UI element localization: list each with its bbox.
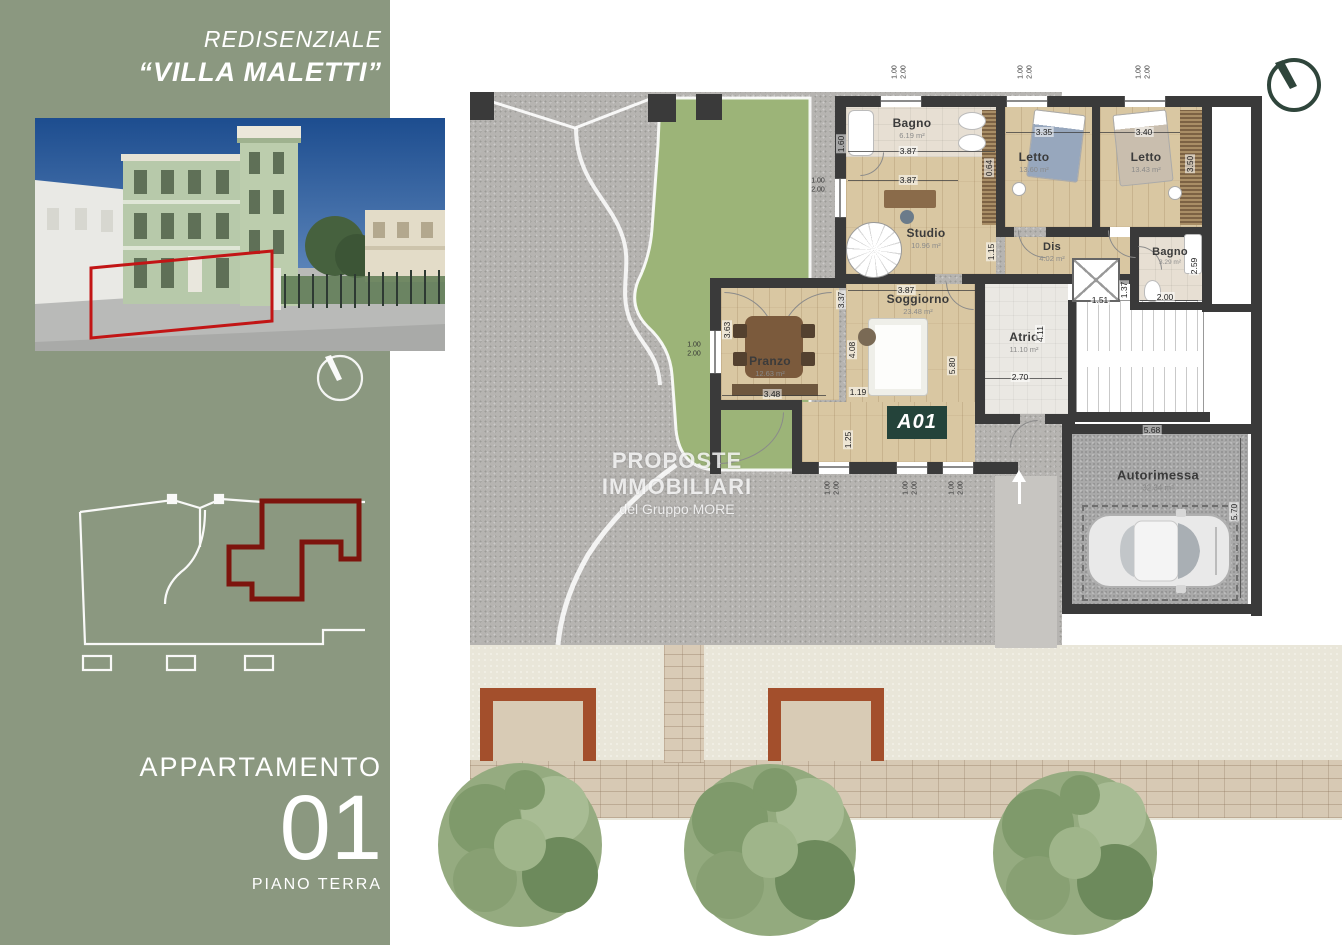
residence-type: REDISENZIALE xyxy=(0,26,382,53)
apartment-badge: A01 xyxy=(887,406,947,439)
dim-label: 3.87 xyxy=(899,146,918,156)
nightstand xyxy=(1168,186,1182,200)
chair xyxy=(733,324,747,338)
dim-label: 4.08 xyxy=(847,341,857,360)
wall xyxy=(710,400,802,410)
window-size-label: 1.002.00 xyxy=(948,481,966,495)
north-compass-icon-small xyxy=(308,348,368,408)
staircase xyxy=(1076,300,1204,414)
side-table xyxy=(858,328,876,346)
street-trees xyxy=(430,750,1200,945)
entrance-arrow xyxy=(1012,470,1026,482)
dim-label: 1.51 xyxy=(1091,295,1110,305)
brochure-page: REDISENZIALE “VILLA MALETTI” xyxy=(0,0,1342,945)
building-photo xyxy=(35,118,445,351)
car-top-view xyxy=(1086,509,1232,593)
desk xyxy=(884,190,936,208)
wall xyxy=(1046,227,1110,237)
window xyxy=(818,462,850,474)
residence-header: REDISENZIALE “VILLA MALETTI” xyxy=(0,26,382,88)
wall xyxy=(1251,96,1262,616)
window-size-label: 1.002.00 xyxy=(902,481,920,495)
dim-label: 1.25 xyxy=(843,431,853,450)
window-size-label: 1.002.00 xyxy=(1017,65,1035,79)
tree xyxy=(684,764,856,936)
dim-label: 3.48 xyxy=(763,389,782,399)
apartment-number: 01 xyxy=(0,785,382,872)
room-label-dis: Dis 4.02 m² xyxy=(1039,241,1064,263)
window-size-label: 1.002.00 xyxy=(891,65,909,79)
sofa xyxy=(868,318,928,396)
wall xyxy=(848,462,896,474)
window xyxy=(1006,96,1048,107)
dim-label: 0.64 xyxy=(984,159,994,178)
dimension-line xyxy=(848,151,995,152)
room-label-studio: Studio 10.96 m² xyxy=(906,226,945,250)
window xyxy=(1124,96,1166,107)
wall xyxy=(1202,96,1212,312)
wall xyxy=(975,282,985,414)
wall xyxy=(1092,107,1100,227)
wall xyxy=(710,278,846,288)
room-label-letto-1: Letto 13.60 m² xyxy=(1019,150,1050,174)
wall xyxy=(792,462,818,474)
north-compass-icon xyxy=(1262,55,1326,119)
floor-label: PIANO TERRA xyxy=(0,876,382,894)
dim-label: 3.37 xyxy=(836,291,846,310)
room-label-autorimessa: Autorimessa 32.34 m² xyxy=(1117,468,1199,493)
tree xyxy=(993,771,1157,935)
key-plan xyxy=(55,462,365,677)
tree xyxy=(438,763,602,927)
room-label-bagno-2: Bagno 3.29 m² xyxy=(1152,246,1188,266)
dimension-line xyxy=(1240,438,1241,598)
nightstand xyxy=(1012,182,1026,196)
dim-label: 3.50 xyxy=(1185,155,1195,174)
dim-label: 3.35 xyxy=(1035,127,1054,137)
dim-label: 1.19 xyxy=(849,387,868,397)
window xyxy=(710,330,721,374)
room-label-bagno-1: Bagno 6.19 m² xyxy=(893,116,932,140)
key-plan-apartment-outline xyxy=(229,501,359,599)
wall xyxy=(1130,302,1208,310)
window-size-label: 1.002.00 xyxy=(1135,65,1153,79)
entrance-arrow-stem xyxy=(1018,482,1021,504)
wall xyxy=(926,462,942,474)
chair xyxy=(801,324,815,338)
dim-label: 3.63 xyxy=(722,321,732,340)
dim-label: 2.70 xyxy=(1011,372,1030,382)
dim-label: 5.80 xyxy=(947,357,957,376)
dim-label: 4.11 xyxy=(1035,325,1045,343)
dim-label: 5.70 xyxy=(1229,503,1239,522)
dim-label: 3.87 xyxy=(899,175,918,185)
dim-label: 5.68 xyxy=(1143,425,1162,435)
wall xyxy=(996,96,1005,237)
room-label-pranzo: Pranzo 12.63 m² xyxy=(749,354,791,378)
garage-wall xyxy=(1062,604,1258,614)
dim-label: 3.87 xyxy=(897,285,916,295)
apartment-title-block: APPARTAMENTO 01 PIANO TERRA xyxy=(0,752,382,894)
window xyxy=(942,462,974,474)
window-size-label: 1.002.00 xyxy=(824,481,842,495)
desk-chair xyxy=(900,210,914,224)
dim-label: 2.59 xyxy=(1189,257,1199,276)
dim-label: 2.00 xyxy=(1156,292,1175,302)
chair xyxy=(733,352,747,366)
room-label-soggiorno: Soggiorno 23.48 m² xyxy=(887,292,950,316)
bed xyxy=(1112,109,1173,186)
residence-name: “VILLA MALETTI” xyxy=(0,57,382,88)
room-label-letto-2: Letto 13.43 m² xyxy=(1131,150,1162,174)
dim-label: 3.40 xyxy=(1135,127,1154,137)
window xyxy=(896,462,928,474)
photo-annex-building xyxy=(35,180,130,304)
wall xyxy=(975,414,1020,424)
sink xyxy=(958,112,986,130)
window-size-label: 1.002.00 xyxy=(687,341,701,359)
wall xyxy=(1068,300,1076,416)
dim-label: 1.60 xyxy=(836,135,846,154)
wall xyxy=(996,227,1014,237)
dim-label: 1.37 xyxy=(1119,281,1129,300)
bathtub xyxy=(848,110,874,156)
garage-wall xyxy=(1062,424,1072,614)
wall xyxy=(1068,412,1210,422)
chair xyxy=(801,352,815,366)
window-size-label: 1.002.00 xyxy=(811,177,825,195)
window xyxy=(880,96,922,107)
sink xyxy=(958,134,986,152)
spiral-staircase xyxy=(846,222,902,278)
window xyxy=(835,178,846,218)
dim-label: 1.15 xyxy=(986,243,996,262)
stair-run-lower xyxy=(1077,367,1203,413)
